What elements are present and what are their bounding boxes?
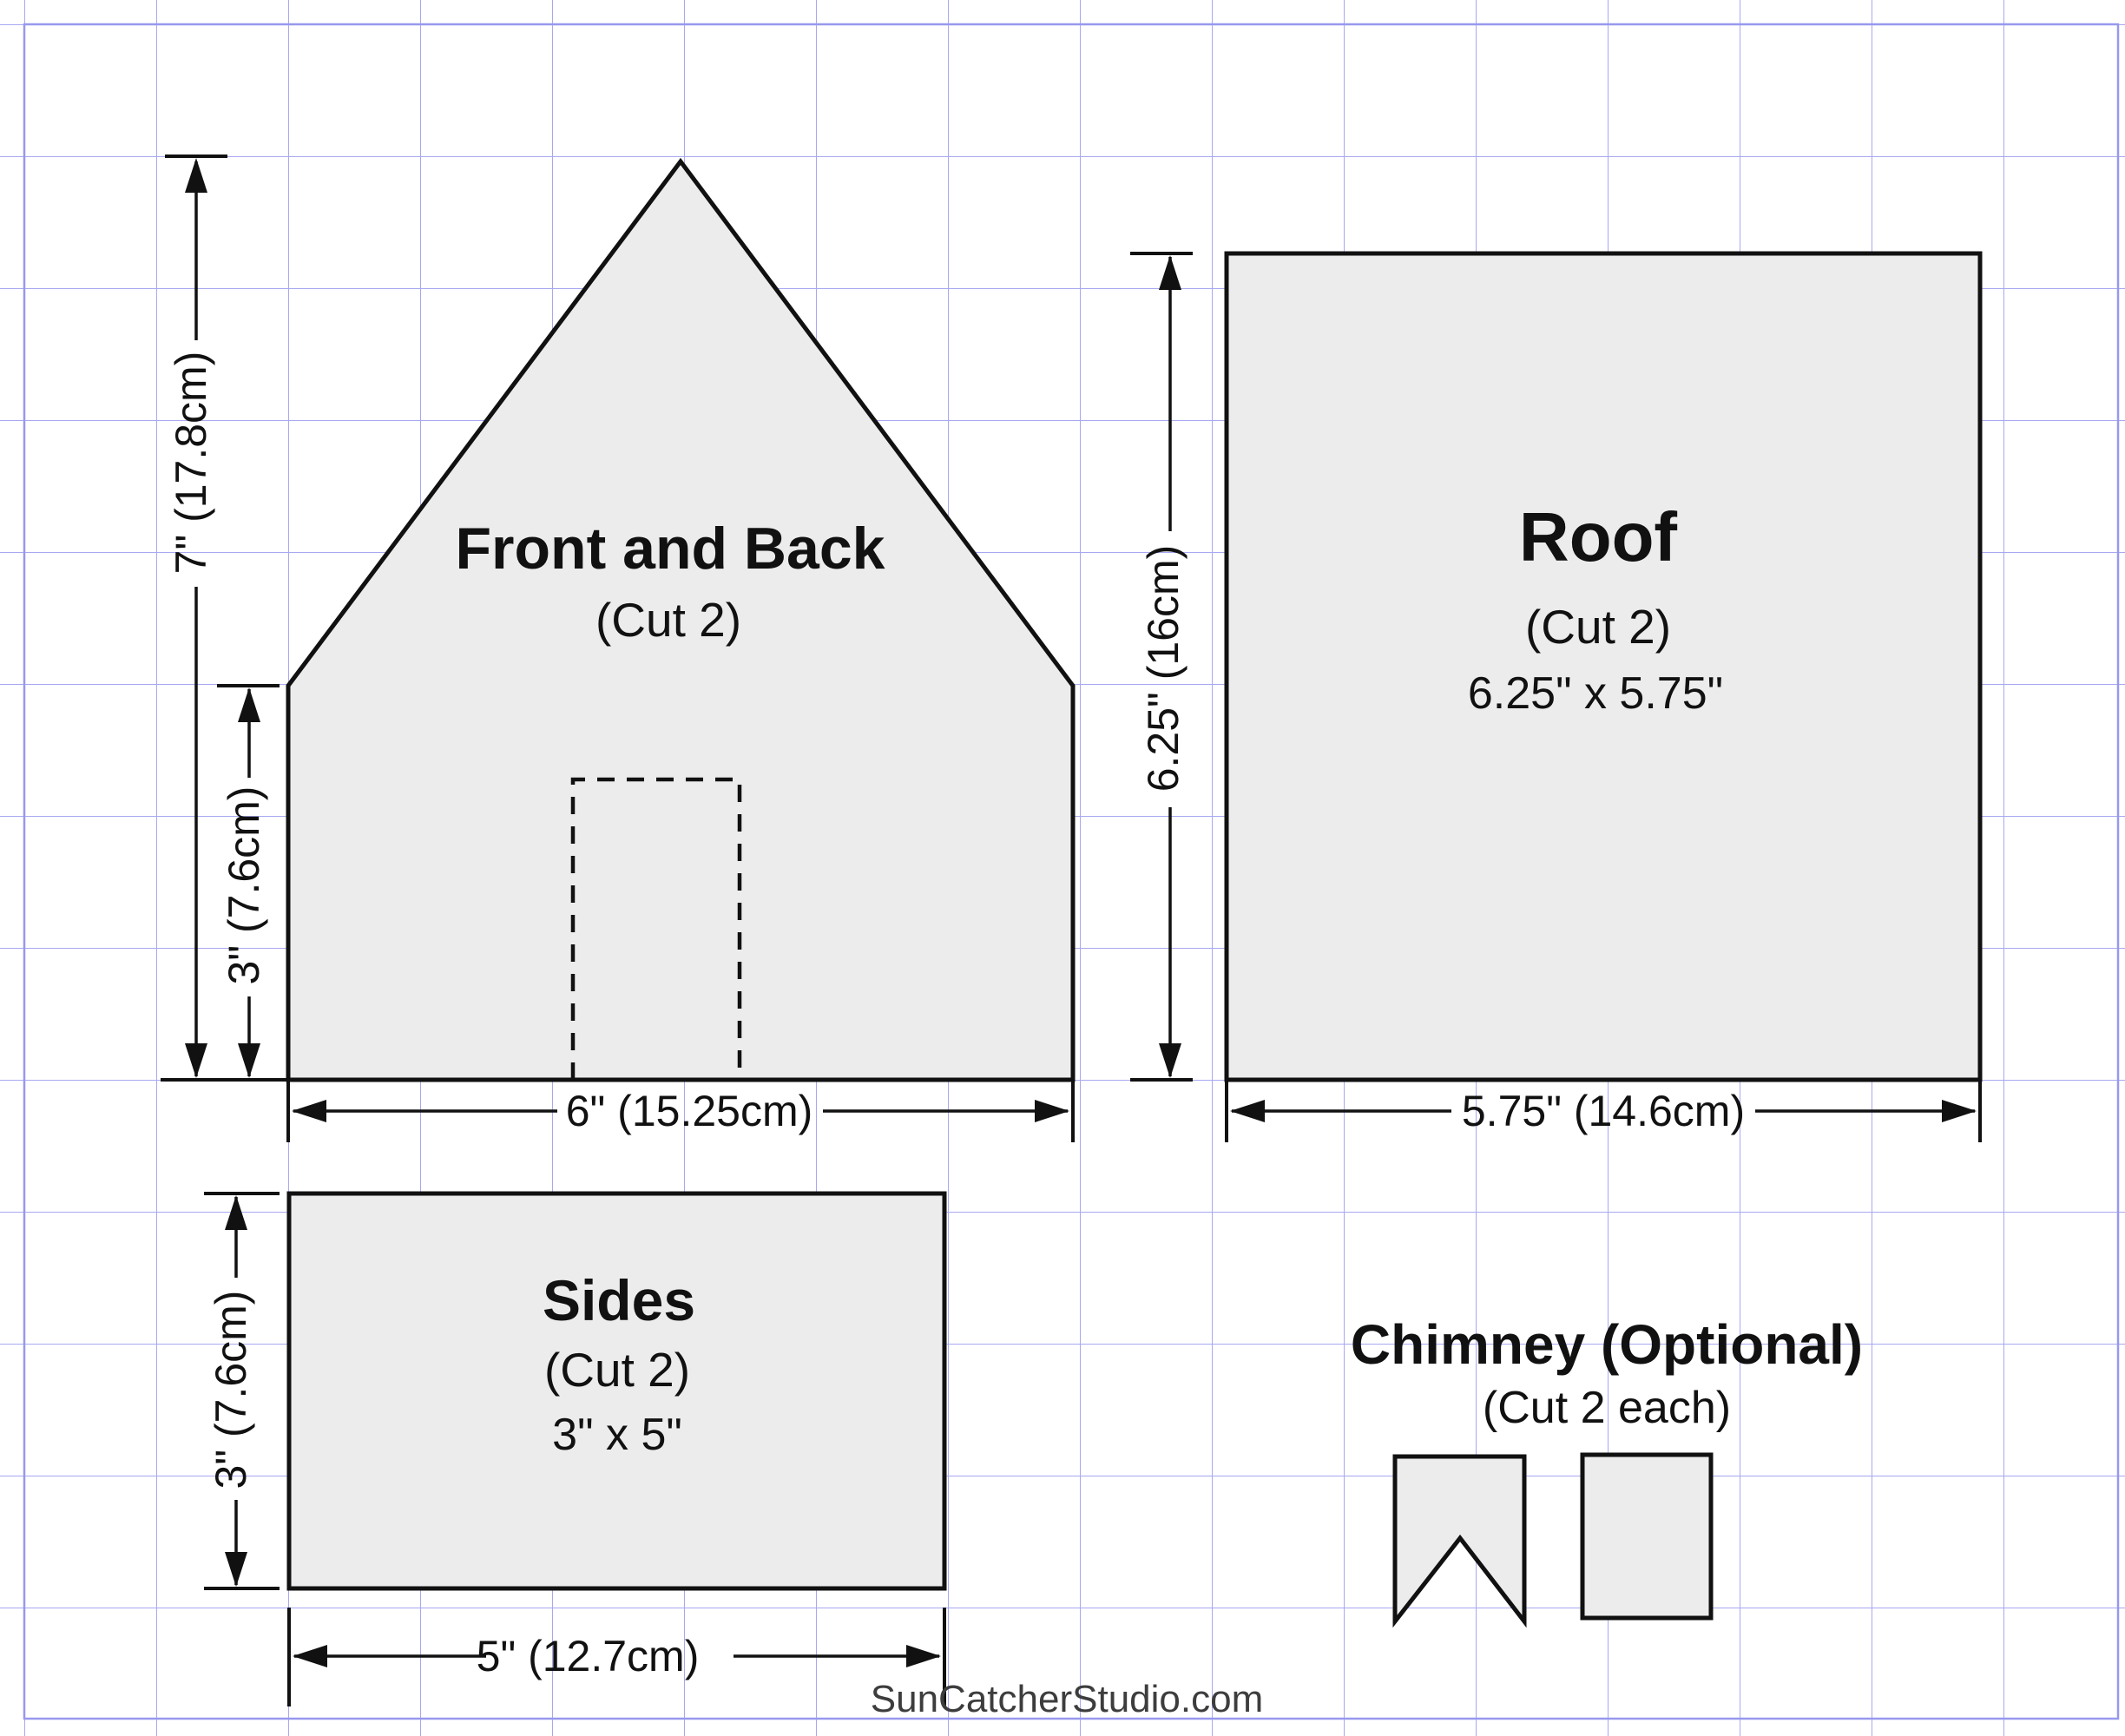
chimney-cut-label: (Cut 2 each): [1483, 1383, 1731, 1433]
side-height-label: 3" (7.6cm): [207, 1291, 255, 1489]
sides-title: Sides: [543, 1268, 695, 1332]
roof-width-label: 5.75" (14.6cm): [1462, 1087, 1745, 1135]
roof-piece-group: Roof (Cut 2) 6.25" x 5.75": [1227, 253, 1980, 1080]
front-wall-height-label: 3" (7.6cm): [220, 786, 268, 985]
roof-size-label: 6.25" x 5.75": [1468, 668, 1723, 719]
roof-height-label: 6.25" (16cm): [1139, 545, 1187, 792]
chimney-title: Chimney (Optional): [1351, 1313, 1863, 1376]
front-back-cut-label: (Cut 2): [595, 593, 741, 647]
sides-piece-group: Sides (Cut 2) 3" x 5": [289, 1193, 944, 1588]
front-width-label: 6" (15.25cm): [566, 1087, 813, 1135]
watermark-text: SunCatcherStudio.com: [871, 1678, 1263, 1720]
gingerbread-house-template-diagram: Front and Back (Cut 2) 7" (17.8cm) 3" (7…: [0, 0, 2125, 1736]
roof-cut-label: (Cut 2): [1525, 600, 1671, 654]
front-total-height-label: 7" (17.8cm): [167, 352, 215, 575]
side-width-label: 5" (12.7cm): [477, 1632, 700, 1680]
front-back-title: Front and Back: [456, 516, 885, 582]
template-page: Front and Back (Cut 2) 7" (17.8cm) 3" (7…: [0, 0, 2125, 1736]
sides-cut-label: (Cut 2): [544, 1343, 690, 1397]
sides-size-label: 3" x 5": [552, 1410, 682, 1460]
roof-title: Roof: [1519, 498, 1678, 575]
chimney-plain-piece-shape: [1582, 1455, 1711, 1618]
roof-piece-shape: [1227, 253, 1980, 1080]
